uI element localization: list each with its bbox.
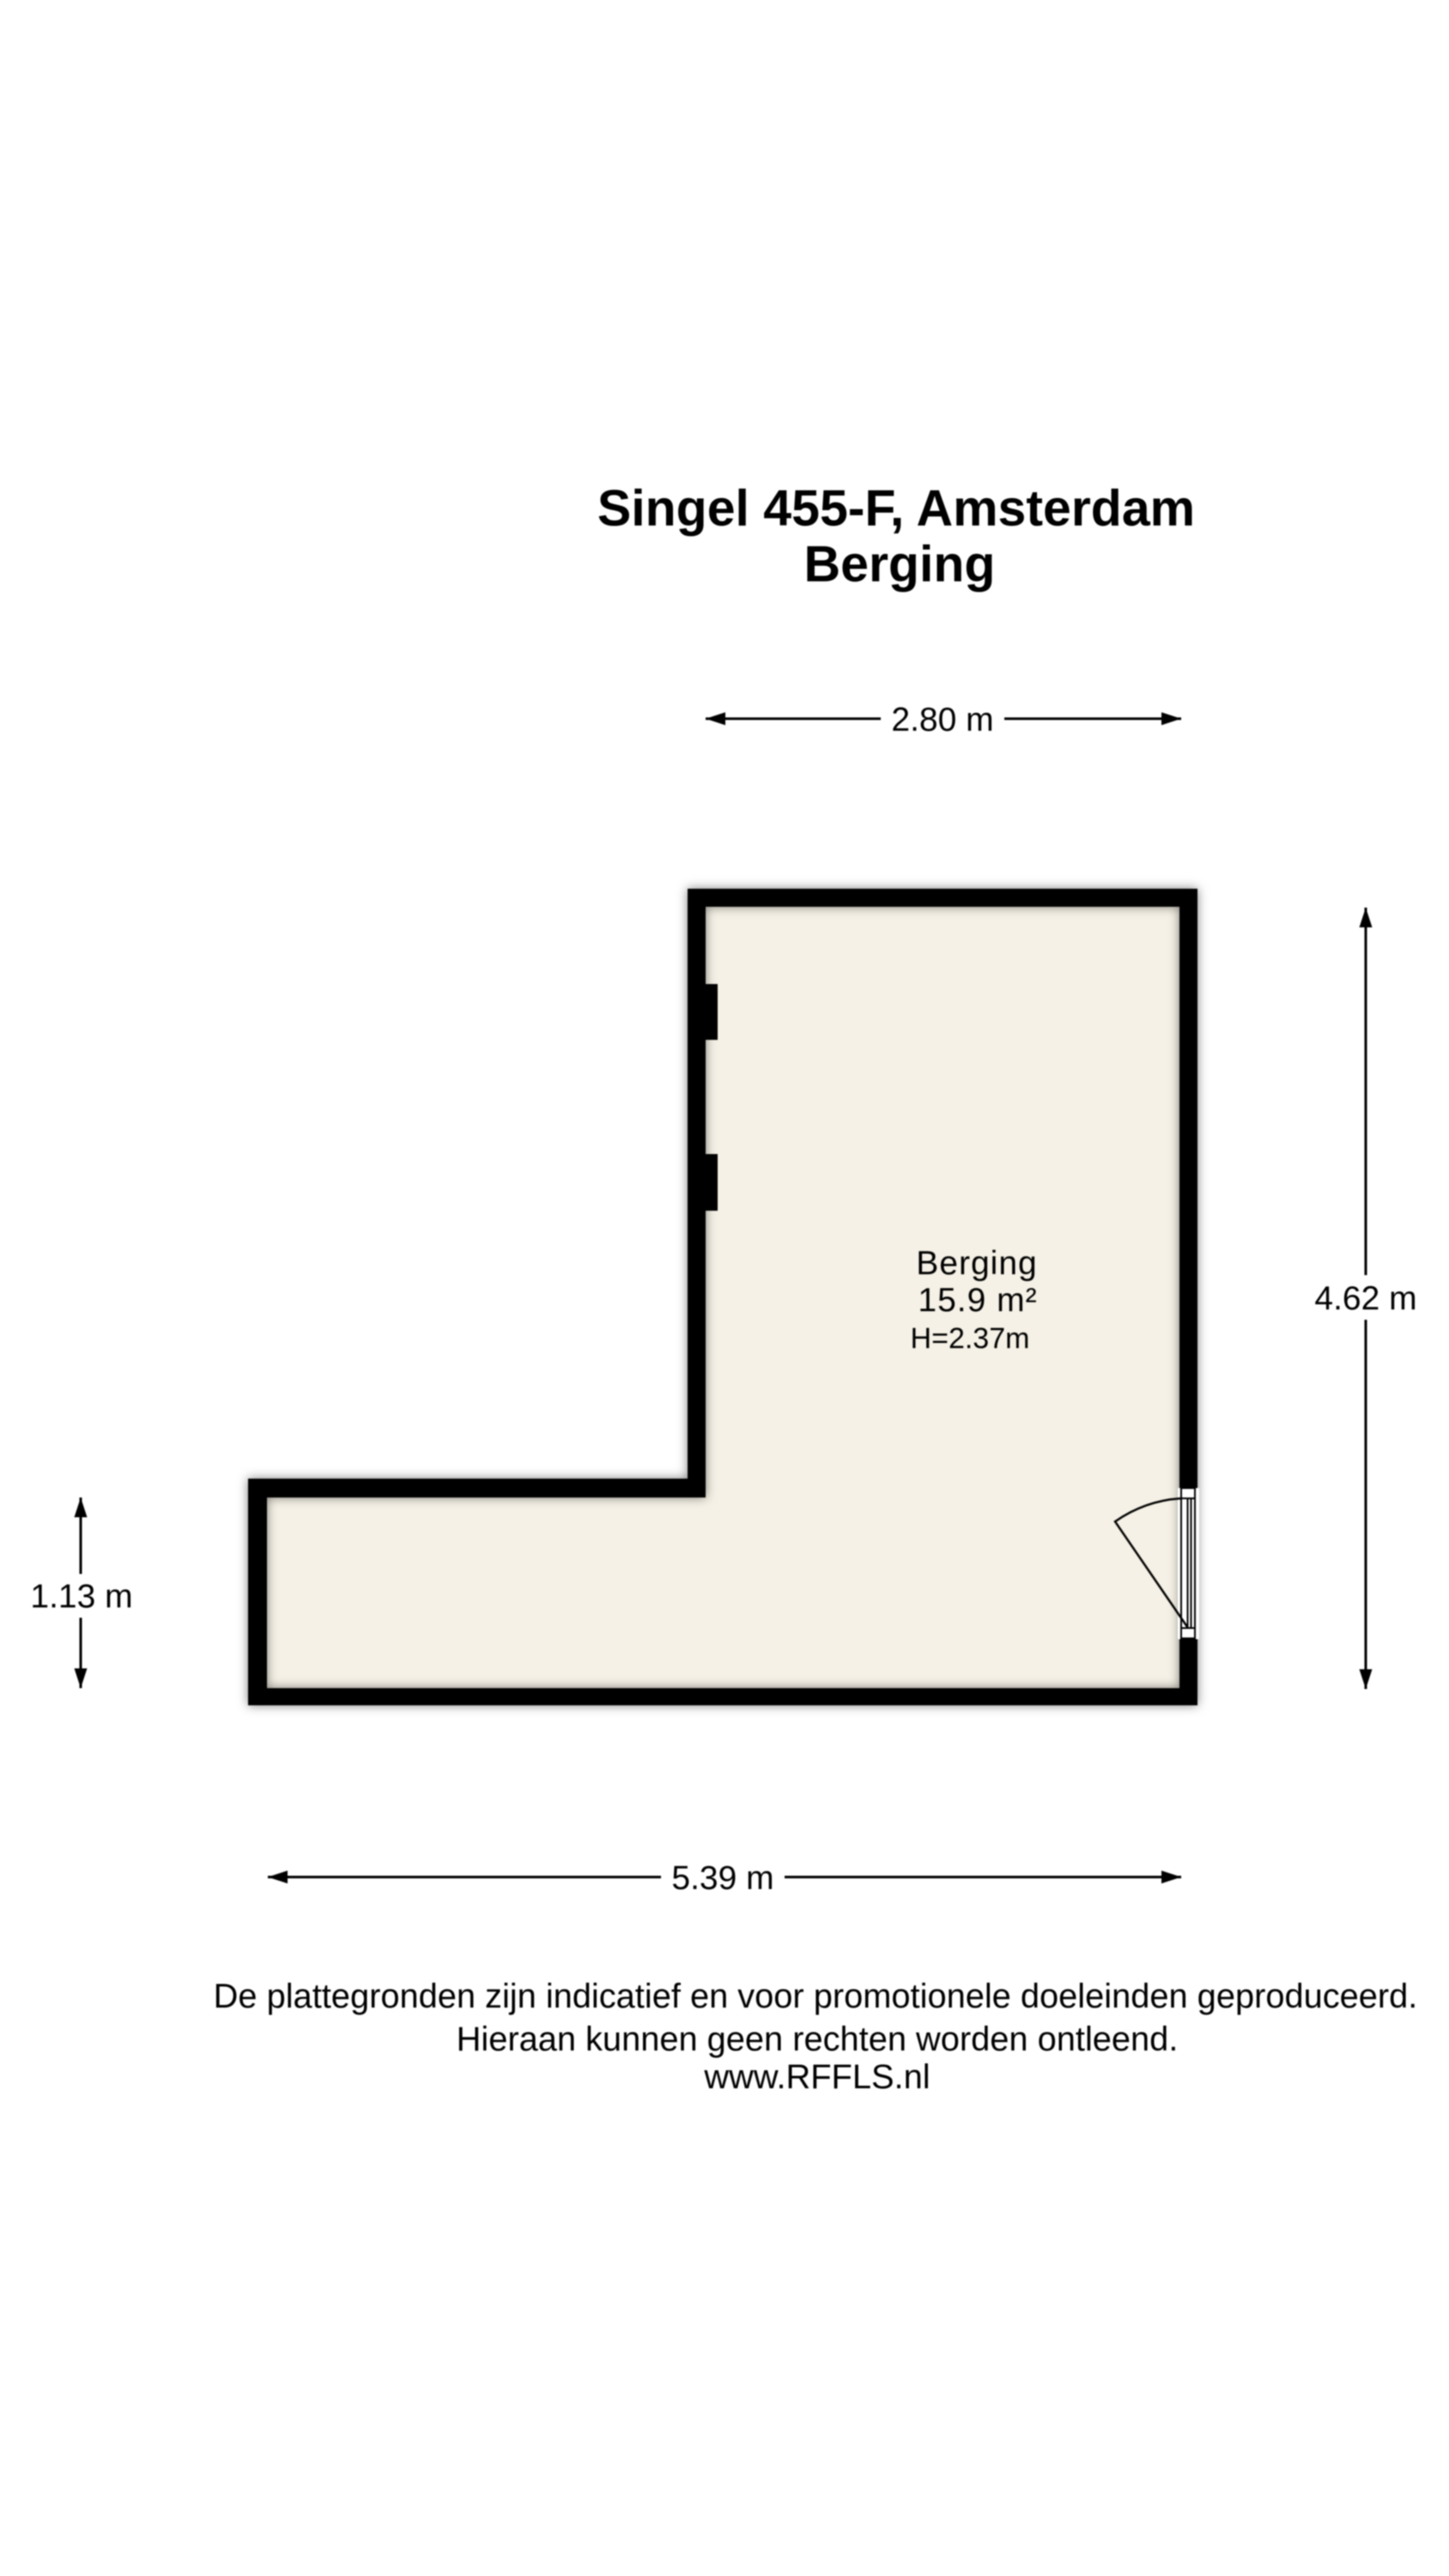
svg-text:De plattegronden zijn indicati: De plattegronden zijn indicatief en voor…: [214, 1978, 1418, 2015]
svg-text:H=2.37m: H=2.37m: [911, 1322, 1030, 1355]
svg-text:1.13 m: 1.13 m: [30, 1578, 132, 1615]
svg-text:15.9 m²: 15.9 m²: [918, 1282, 1037, 1319]
svg-text:Singel 455-F, Amsterdam: Singel 455-F, Amsterdam: [597, 480, 1195, 537]
svg-text:www.RFFLS.nl: www.RFFLS.nl: [703, 2058, 930, 2096]
svg-text:2.80 m: 2.80 m: [891, 702, 993, 738]
svg-text:Hieraan kunnen geen rechten wo: Hieraan kunnen geen rechten worden ontle…: [457, 2020, 1179, 2058]
svg-text:Berging: Berging: [804, 536, 996, 592]
svg-text:Berging: Berging: [916, 1245, 1037, 1282]
svg-text:4.62 m: 4.62 m: [1314, 1280, 1416, 1317]
svg-text:5.39 m: 5.39 m: [671, 1860, 773, 1897]
